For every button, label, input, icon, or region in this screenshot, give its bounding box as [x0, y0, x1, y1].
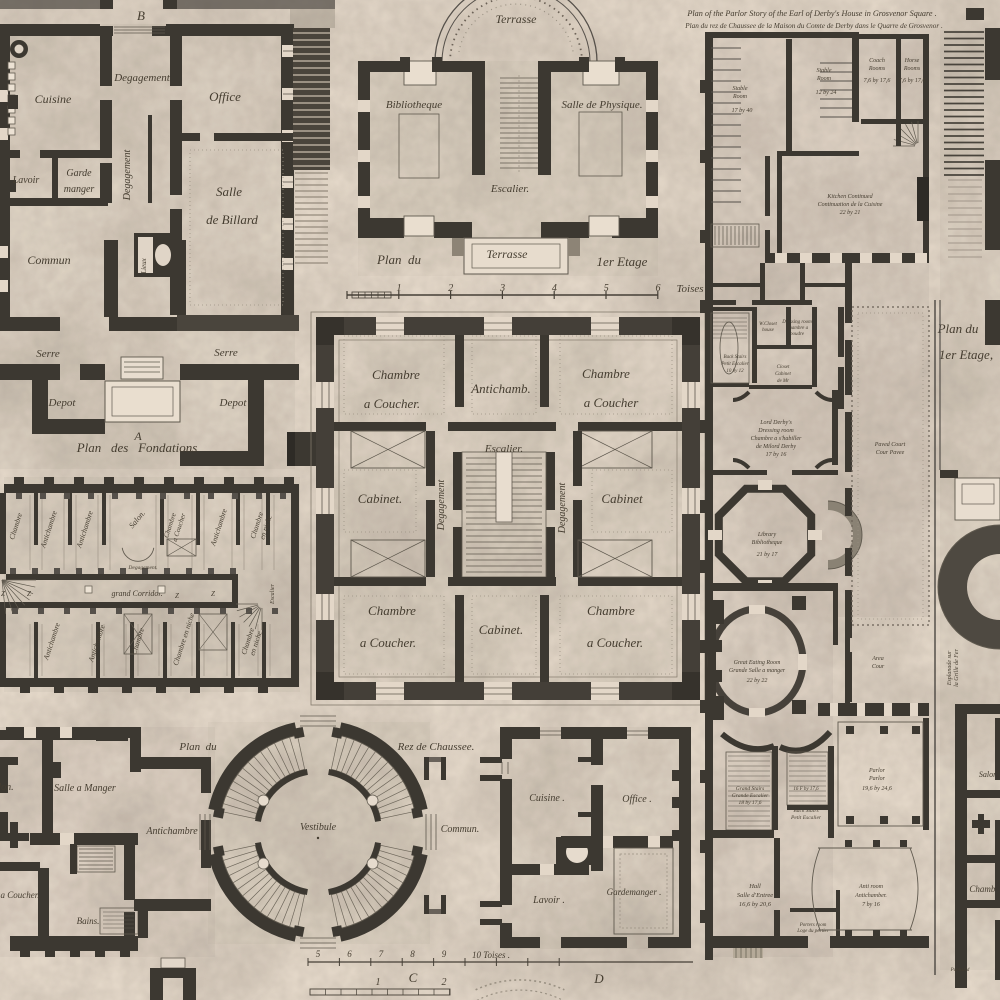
svg-text:poudre: poudre — [789, 332, 805, 337]
svg-text:Rooms: Rooms — [868, 66, 886, 72]
svg-text:Porters room: Porters room — [799, 923, 827, 928]
svg-text:Salle: Salle — [216, 184, 242, 199]
svg-text:6: 6 — [656, 283, 661, 294]
svg-text:Petit Escalier: Petit Escalier — [790, 815, 822, 821]
svg-text:Back Stairs: Back Stairs — [724, 355, 747, 360]
svg-text:D: D — [593, 971, 604, 986]
svg-text:Escalier.: Escalier. — [490, 183, 529, 195]
svg-text:Dressing room: Dressing room — [781, 320, 812, 325]
svg-text:Kitchen Continued: Kitchen Continued — [826, 194, 873, 200]
svg-text:Cabinet.: Cabinet. — [358, 491, 402, 506]
svg-text:Grande Salle a manger: Grande Salle a manger — [729, 668, 786, 674]
svg-text:Office: Office — [209, 89, 241, 104]
svg-text:16 F by 17,6: 16 F by 17,6 — [793, 787, 819, 792]
svg-text:W.Closet: W.Closet — [759, 322, 777, 327]
svg-text:Commun.: Commun. — [441, 824, 480, 835]
svg-text:12 by 24: 12 by 24 — [816, 89, 837, 96]
svg-text:4: 4 — [552, 283, 557, 294]
svg-text:Z: Z — [175, 592, 179, 600]
svg-text:10 Toises .: 10 Toises . — [472, 950, 510, 960]
svg-text:Antichambre: Antichambre — [145, 826, 198, 837]
svg-text:Depot: Depot — [219, 397, 248, 409]
svg-text:Chambre: Chambre — [368, 603, 416, 618]
svg-text:1: 1 — [376, 977, 381, 988]
svg-text:9: 9 — [442, 949, 447, 959]
svg-text:Plan des Fondations: Plan des Fondations — [76, 440, 198, 455]
svg-text:1er Etage,: 1er Etage, — [939, 347, 993, 362]
svg-text:Office .: Office . — [622, 794, 651, 805]
svg-text:de Mr: de Mr — [777, 379, 789, 384]
svg-text:a Coucher.: a Coucher. — [364, 396, 420, 411]
svg-text:Plan du rez de Chaussee de la: Plan du rez de Chaussee de la Maison du … — [684, 22, 943, 30]
svg-text:Gardemanger .: Gardemanger . — [607, 887, 662, 897]
svg-text:Coach: Coach — [869, 58, 885, 64]
svg-text:Chambre: Chambre — [582, 366, 630, 381]
svg-text:Room: Room — [816, 76, 832, 82]
svg-text:Lavoir: Lavoir — [12, 175, 40, 186]
svg-text:a Coucher.: a Coucher. — [1, 890, 40, 900]
svg-text:Petit Escalier: Petit Escalier — [720, 362, 748, 367]
svg-text:Dressing room: Dressing room — [757, 428, 794, 434]
svg-text:21 by 17: 21 by 17 — [757, 552, 779, 558]
svg-text:22 by 21: 22 by 21 — [840, 210, 861, 216]
svg-text:Bibliotheque: Bibliotheque — [752, 540, 783, 546]
svg-text:Rez de Chaussee.: Rez de Chaussee. — [397, 741, 475, 753]
svg-text:Chambre: Chambre — [372, 367, 420, 382]
svg-text:lon.: lon. — [0, 782, 14, 793]
svg-text:16,6 by 20,6: 16,6 by 20,6 — [739, 901, 772, 908]
svg-text:Salle d'Entree: Salle d'Entree — [737, 892, 773, 899]
svg-text:Vestibule: Vestibule — [300, 822, 337, 833]
svg-text:7 by 16: 7 by 16 — [862, 902, 880, 908]
svg-text:2: 2 — [442, 977, 447, 988]
svg-text:5: 5 — [604, 283, 609, 294]
svg-text:Stable: Stable — [733, 86, 748, 92]
svg-text:Escalier.: Escalier. — [484, 443, 523, 455]
svg-text:5: 5 — [316, 949, 321, 959]
svg-text:Salle a Manger: Salle a Manger — [54, 783, 116, 794]
svg-text:Toises: Toises — [676, 283, 703, 295]
svg-text:Plan of the Parlor Story of th: Plan of the Parlor Story of the Earl of … — [686, 9, 936, 18]
svg-text:a Coucher.: a Coucher. — [360, 635, 416, 650]
svg-text:Parlor: Parlor — [868, 768, 886, 774]
svg-text:2: 2 — [448, 283, 453, 294]
svg-text:Terrasse: Terrasse — [487, 247, 529, 261]
svg-text:Commun: Commun — [27, 253, 70, 267]
svg-text:Cabinet: Cabinet — [775, 372, 791, 377]
svg-text:Lavoir .: Lavoir . — [532, 895, 565, 906]
svg-text:Escalier: Escalier — [270, 583, 276, 605]
svg-text:Plan du: Plan du — [376, 252, 422, 267]
svg-text:Grande Escalier: Grande Escalier — [732, 793, 769, 799]
svg-text:Hall: Hall — [748, 883, 761, 890]
svg-text:house: house — [762, 328, 774, 333]
svg-text:Cour: Cour — [872, 664, 885, 670]
svg-text:Antichamb.: Antichamb. — [470, 381, 531, 396]
svg-text:Anti room: Anti room — [858, 884, 884, 890]
svg-text:Closet: Closet — [777, 365, 790, 370]
svg-text:Bibliotheque: Bibliotheque — [386, 99, 442, 111]
svg-text:Lord Derby's: Lord Derby's — [759, 420, 792, 426]
svg-text:de Billard: de Billard — [206, 212, 258, 227]
svg-text:Grand Stairs: Grand Stairs — [736, 786, 765, 792]
svg-text:7: 7 — [379, 949, 384, 959]
svg-text:3: 3 — [499, 283, 505, 294]
svg-text:Serre: Serre — [36, 348, 60, 360]
svg-text:C: C — [409, 970, 418, 985]
svg-text:Great Eating Room: Great Eating Room — [734, 660, 781, 666]
svg-text:Antichamber.: Antichamber. — [854, 893, 887, 899]
svg-text:Cabinet: Cabinet — [601, 491, 643, 506]
svg-text:Chambre a s'habiller: Chambre a s'habiller — [751, 436, 802, 442]
svg-text:Degagement.: Degagement. — [127, 565, 157, 571]
svg-text:Area: Area — [871, 656, 883, 662]
svg-text:Stable: Stable — [817, 68, 832, 74]
svg-text:Salon: Salon — [979, 770, 997, 779]
svg-text:Esplanade sur: Esplanade sur — [947, 650, 953, 686]
svg-text:Chambre: Chambre — [587, 603, 635, 618]
svg-text:19,6 by 24,6: 19,6 by 24,6 — [862, 785, 892, 792]
svg-text:manger: manger — [64, 184, 95, 195]
svg-text:grand Corridor.: grand Corridor. — [111, 589, 162, 598]
svg-text:6: 6 — [347, 949, 352, 959]
svg-text:a Coucher: a Coucher — [584, 395, 639, 410]
svg-text:Rooms: Rooms — [903, 66, 921, 72]
svg-text:Continuation de la Cuisine: Continuation de la Cuisine — [818, 202, 883, 208]
svg-text:Lieux: Lieux — [140, 257, 148, 274]
svg-text:Cuisine: Cuisine — [35, 92, 72, 106]
svg-text:la Grille de Fer: la Grille de Fer — [954, 648, 960, 686]
svg-text:22 by 22: 22 by 22 — [747, 678, 768, 684]
svg-text:Degagement: Degagement — [122, 150, 133, 202]
svg-text:Cuisine .: Cuisine . — [529, 793, 565, 804]
svg-text:Cabinet.: Cabinet. — [479, 622, 523, 637]
svg-text:de Milord Derby: de Milord Derby — [756, 444, 796, 450]
svg-text:Degagement: Degagement — [113, 72, 171, 84]
svg-text:Terrasse: Terrasse — [496, 12, 538, 26]
svg-text:7,6 by 17,6: 7,6 by 17,6 — [864, 78, 891, 84]
svg-text:Publish'd: Publish'd — [950, 968, 970, 973]
svg-text:Plan du: Plan du — [937, 321, 979, 336]
svg-text:17 by 40: 17 by 40 — [732, 107, 753, 114]
svg-text:Garde: Garde — [66, 168, 92, 179]
svg-text:Serre: Serre — [214, 347, 238, 359]
svg-text:Horse: Horse — [904, 58, 920, 64]
svg-text:1: 1 — [397, 283, 402, 294]
svg-text:10 by 12: 10 by 12 — [726, 369, 744, 374]
svg-text:B: B — [137, 8, 145, 23]
svg-text:17 by 16: 17 by 16 — [766, 452, 787, 458]
svg-text:18 by 17,6: 18 by 17,6 — [738, 800, 761, 806]
svg-text:Room: Room — [732, 94, 748, 100]
svg-text:Degagement: Degagement — [557, 483, 568, 535]
svg-text:Salle de Physique.: Salle de Physique. — [562, 99, 643, 111]
svg-text:Cour Pavee: Cour Pavee — [876, 450, 905, 456]
svg-text:8: 8 — [410, 949, 415, 959]
svg-text:7,6 by 17,6: 7,6 by 17,6 — [899, 78, 926, 84]
svg-text:Z: Z — [211, 590, 215, 598]
svg-text:a Coucher.: a Coucher. — [587, 635, 643, 650]
svg-text:1er Etage: 1er Etage — [597, 254, 648, 269]
svg-text:Library: Library — [757, 532, 777, 538]
svg-text:Bains.: Bains. — [77, 916, 100, 926]
svg-text:Parlor: Parlor — [868, 776, 886, 782]
svg-text:Depot: Depot — [48, 397, 77, 409]
svg-text:Paved Court: Paved Court — [874, 442, 906, 448]
svg-text:Degagement: Degagement — [436, 480, 447, 532]
svg-text:Plan du: Plan du — [178, 741, 217, 753]
